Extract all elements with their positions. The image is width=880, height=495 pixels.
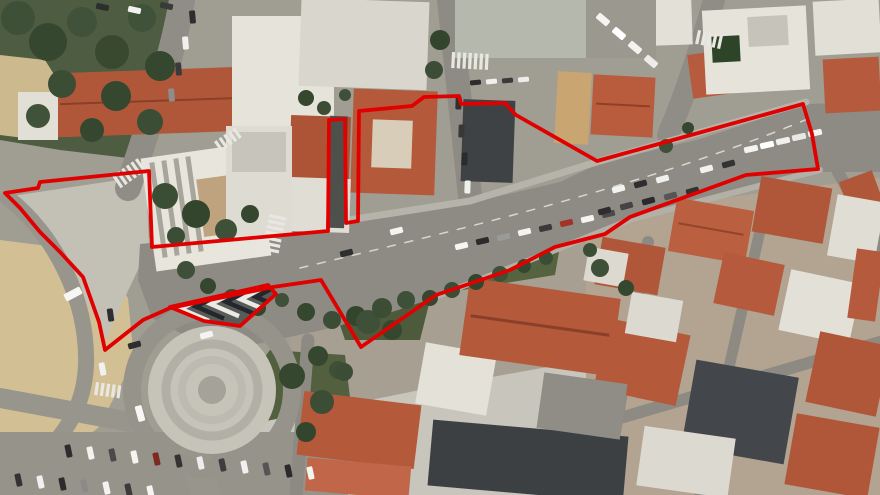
tree bbox=[145, 51, 175, 81]
tree bbox=[101, 81, 131, 111]
building bbox=[554, 71, 592, 145]
tree bbox=[297, 303, 315, 321]
building bbox=[784, 413, 879, 495]
car bbox=[464, 180, 470, 193]
car bbox=[168, 88, 175, 101]
tree bbox=[339, 89, 351, 101]
building bbox=[299, 0, 430, 90]
tree bbox=[67, 7, 97, 37]
car bbox=[189, 10, 196, 23]
car bbox=[175, 62, 182, 75]
car bbox=[502, 78, 513, 84]
building bbox=[625, 292, 684, 342]
tree bbox=[296, 422, 316, 442]
tree bbox=[310, 390, 334, 414]
parking-area bbox=[586, 0, 656, 58]
tree bbox=[682, 122, 694, 134]
tree bbox=[48, 70, 76, 98]
tree bbox=[583, 243, 597, 257]
tree bbox=[430, 30, 450, 50]
tree bbox=[335, 363, 353, 381]
car bbox=[182, 36, 189, 49]
tree bbox=[26, 104, 50, 128]
tree bbox=[95, 35, 129, 69]
tree bbox=[137, 109, 163, 135]
car bbox=[486, 79, 497, 85]
aerial-photo-canvas bbox=[0, 0, 880, 495]
satellite-image bbox=[0, 0, 880, 495]
tree bbox=[279, 363, 305, 389]
tree bbox=[308, 346, 328, 366]
tree bbox=[1, 1, 35, 35]
tree bbox=[618, 280, 634, 296]
building bbox=[823, 57, 880, 114]
tree bbox=[241, 205, 259, 223]
tree bbox=[323, 311, 341, 329]
building-courtyard bbox=[371, 119, 413, 168]
car bbox=[470, 80, 481, 86]
tree bbox=[200, 278, 216, 294]
tree bbox=[298, 90, 314, 106]
tree bbox=[152, 183, 178, 209]
roundabout-center bbox=[198, 376, 226, 404]
car bbox=[518, 77, 529, 83]
tree bbox=[425, 61, 443, 79]
tree bbox=[317, 101, 331, 115]
tree bbox=[372, 298, 392, 318]
building bbox=[537, 372, 628, 439]
car bbox=[458, 124, 464, 137]
tree bbox=[80, 118, 104, 142]
tree bbox=[397, 291, 415, 309]
roof-detail bbox=[747, 15, 789, 47]
tree bbox=[29, 23, 67, 61]
building bbox=[455, 0, 603, 58]
building bbox=[461, 99, 516, 183]
tree bbox=[182, 200, 210, 228]
tree bbox=[591, 259, 609, 277]
building bbox=[813, 0, 880, 56]
tree bbox=[177, 261, 195, 279]
tree bbox=[167, 227, 185, 245]
car bbox=[461, 152, 467, 165]
